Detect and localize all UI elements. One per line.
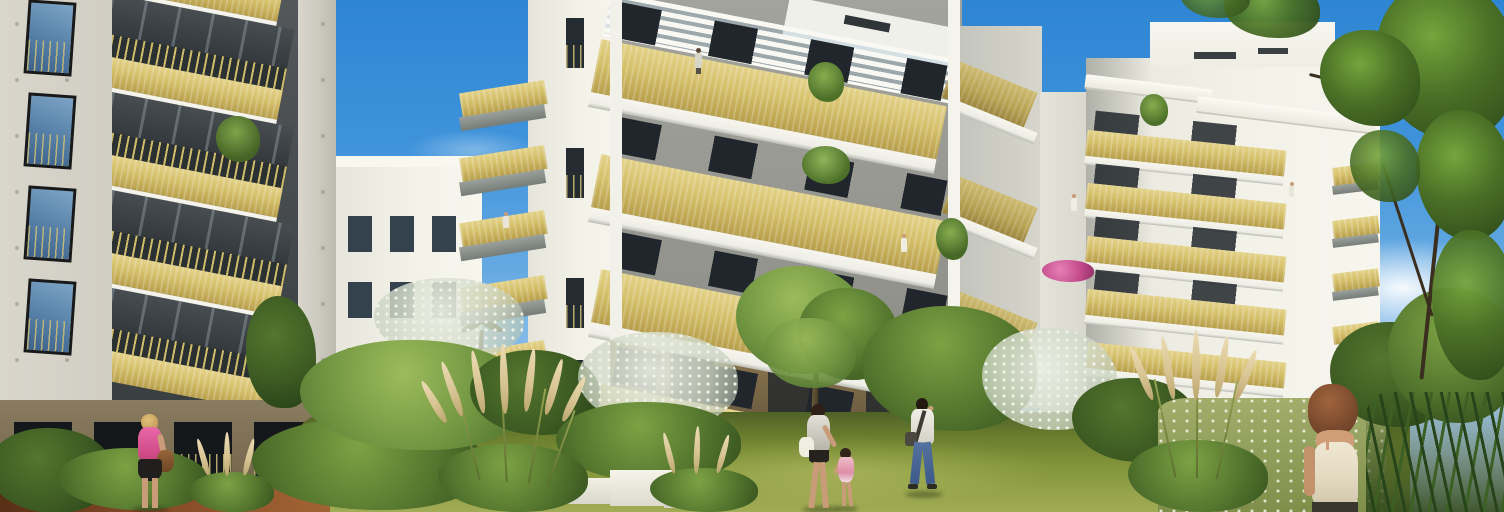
pilaster: [610, 0, 622, 340]
plume: [693, 426, 701, 474]
person-shoe: [908, 484, 918, 489]
juliet-railing: [27, 132, 71, 166]
window: [432, 216, 456, 252]
center-building: [610, 0, 1042, 435]
tall-grasses: [1366, 392, 1504, 512]
strap-gap: [1326, 440, 1329, 450]
grass-base: [190, 472, 274, 512]
window: [23, 0, 76, 77]
person-shorts: [809, 450, 829, 463]
balcony-plant: [1140, 94, 1168, 126]
person-shadow: [132, 506, 168, 512]
balcony-figure: [1070, 194, 1079, 216]
juliet-railing: [14, 454, 72, 482]
penthouse-window: [844, 15, 891, 33]
figure-body: [1071, 198, 1077, 211]
plume: [469, 350, 488, 414]
figure-body: [1289, 186, 1294, 197]
pampas-grass: [644, 428, 764, 512]
juliet-railing: [566, 175, 584, 198]
figure-legs: [696, 68, 701, 74]
balcony-plant: [936, 218, 968, 260]
plume: [522, 348, 538, 412]
juliet-railing: [566, 45, 584, 68]
penthouse-window: [1194, 52, 1236, 59]
window: [566, 148, 584, 198]
balcony-plant: [808, 62, 844, 102]
person-jeans-leg: [922, 442, 935, 485]
plume: [1213, 336, 1232, 398]
person-tank-top: [1312, 442, 1358, 504]
architectural-rendering: [0, 0, 1504, 512]
figure-body: [503, 216, 509, 228]
window: [348, 282, 372, 318]
person-jeans-leg: [910, 442, 923, 485]
person-leg: [808, 462, 820, 508]
person-leg: [142, 478, 148, 508]
plume: [241, 438, 256, 476]
window: [566, 18, 584, 68]
window: [348, 216, 372, 252]
pampas-grass: [182, 436, 282, 512]
right-tower-penthouse: [1150, 22, 1335, 67]
plume: [1192, 330, 1200, 400]
window: [566, 278, 584, 328]
juliet-railing: [566, 305, 584, 328]
plume: [195, 438, 211, 476]
juliet-railing: [27, 318, 71, 352]
pampas-grass: [1108, 336, 1288, 512]
plume: [224, 432, 230, 476]
juliet-railing: [27, 225, 71, 259]
plume: [499, 344, 509, 414]
plume: [1159, 336, 1178, 400]
child: [832, 448, 860, 512]
child-dress: [838, 457, 854, 483]
pampas-grass: [408, 352, 618, 512]
pink-balcony-flowers: [1042, 260, 1094, 282]
person-arm: [1304, 446, 1315, 496]
person-leg: [152, 478, 158, 508]
balcony-figure: [694, 48, 704, 74]
window: [390, 282, 414, 318]
window: [432, 282, 456, 318]
figure-body: [901, 238, 907, 252]
woman-foreground: [1296, 384, 1374, 512]
grass-base: [650, 468, 758, 512]
balcony-plant: [802, 146, 850, 184]
woman-left: [126, 414, 178, 512]
grass-base: [1128, 440, 1268, 512]
person-shadow: [834, 506, 858, 512]
plume: [559, 375, 588, 423]
juliet-railing: [27, 39, 71, 73]
plume: [661, 432, 677, 474]
person-bottom: [1312, 502, 1358, 512]
corner-edge: [948, 0, 960, 350]
balcony-plant: [216, 116, 260, 162]
figure-body: [695, 53, 702, 68]
plume: [419, 379, 450, 425]
window: [23, 185, 76, 262]
balcony-figure: [1288, 182, 1296, 201]
plume: [1128, 347, 1156, 402]
penthouse-window: [1258, 48, 1288, 54]
person-shoe: [927, 484, 937, 489]
person-leg: [842, 482, 846, 506]
balcony-figure: [502, 212, 510, 228]
base-window: [14, 422, 72, 482]
plume: [542, 358, 566, 416]
window: [23, 92, 76, 169]
left-tower-pier: [298, 0, 336, 416]
person-leg: [819, 462, 829, 508]
man: [901, 398, 947, 498]
person-shadow: [905, 491, 943, 498]
plume: [715, 434, 732, 474]
window: [390, 216, 414, 252]
window: [348, 348, 372, 384]
person-leg: [847, 482, 853, 506]
window: [23, 278, 76, 355]
recessed-balconies: [112, 0, 298, 416]
plume: [1232, 348, 1260, 401]
balcony-figure: [900, 234, 909, 258]
grass-base: [438, 444, 588, 512]
